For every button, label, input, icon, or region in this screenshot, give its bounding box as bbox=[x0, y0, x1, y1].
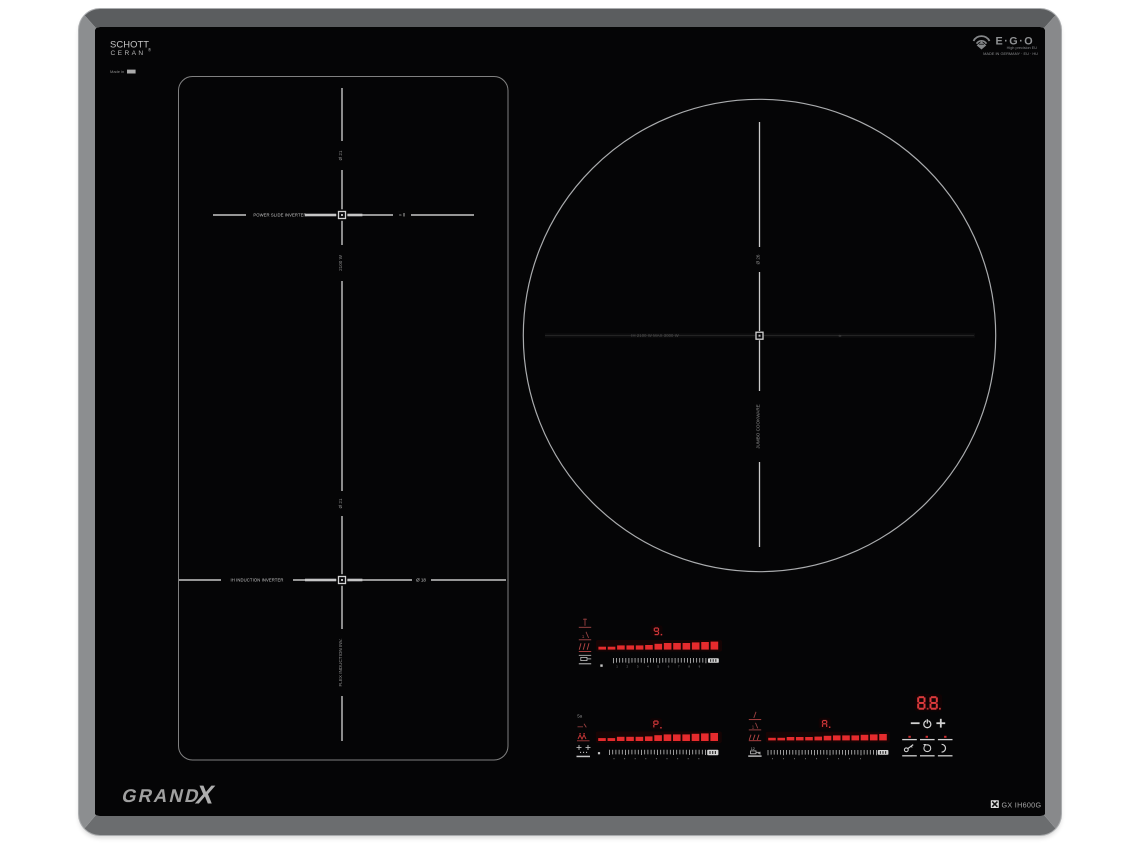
svg-text:Ø 18: Ø 18 bbox=[416, 578, 426, 583]
svg-text:JUMBO COOKWARE: JUMBO COOKWARE bbox=[756, 404, 761, 449]
svg-text:8: 8 bbox=[688, 665, 690, 669]
svg-text:2100 W: 2100 W bbox=[338, 254, 343, 270]
svg-text:IH INDUCTION INVERTER: IH INDUCTION INVERTER bbox=[231, 578, 284, 583]
svg-text:®: ® bbox=[148, 48, 152, 53]
svg-text:≈ ƖƖ: ≈ ƖƖ bbox=[399, 213, 405, 218]
svg-text:12: 12 bbox=[751, 747, 755, 751]
svg-text:POWER SLIDE INVERTER: POWER SLIDE INVERTER bbox=[253, 213, 306, 218]
svg-text:High precision EU: High precision EU bbox=[1007, 46, 1038, 50]
svg-text:Ø 21: Ø 21 bbox=[338, 150, 343, 160]
svg-text:1: 1 bbox=[582, 634, 585, 640]
svg-text:MADE IN GERMANY · EU · HU: MADE IN GERMANY · EU · HU bbox=[983, 51, 1038, 56]
svg-text:≈: ≈ bbox=[839, 333, 842, 339]
svg-text:Ø 21: Ø 21 bbox=[338, 498, 343, 508]
svg-text:5a: 5a bbox=[577, 713, 582, 718]
svg-text:GRAND: GRAND bbox=[120, 785, 203, 806]
svg-text:Ø 26: Ø 26 bbox=[756, 254, 761, 264]
svg-text:1: 1 bbox=[616, 665, 618, 669]
svg-text:9: 9 bbox=[699, 665, 701, 669]
svg-text:4: 4 bbox=[647, 665, 649, 669]
svg-text:GX IH600G: GX IH600G bbox=[1002, 800, 1042, 809]
svg-text:IH 2100 W MAX 3000 W: IH 2100 W MAX 3000 W bbox=[631, 333, 679, 338]
svg-text:6: 6 bbox=[668, 665, 670, 669]
svg-text:Made in: Made in bbox=[110, 69, 124, 74]
svg-text:FLEX INDUCTION INV.: FLEX INDUCTION INV. bbox=[338, 638, 343, 686]
svg-text:SCHOTT: SCHOTT bbox=[110, 39, 149, 50]
svg-text:5: 5 bbox=[657, 665, 659, 669]
svg-text:3: 3 bbox=[637, 665, 639, 669]
svg-text:2: 2 bbox=[627, 665, 629, 669]
svg-text:CERAN: CERAN bbox=[111, 50, 146, 57]
svg-text:7: 7 bbox=[678, 665, 680, 669]
